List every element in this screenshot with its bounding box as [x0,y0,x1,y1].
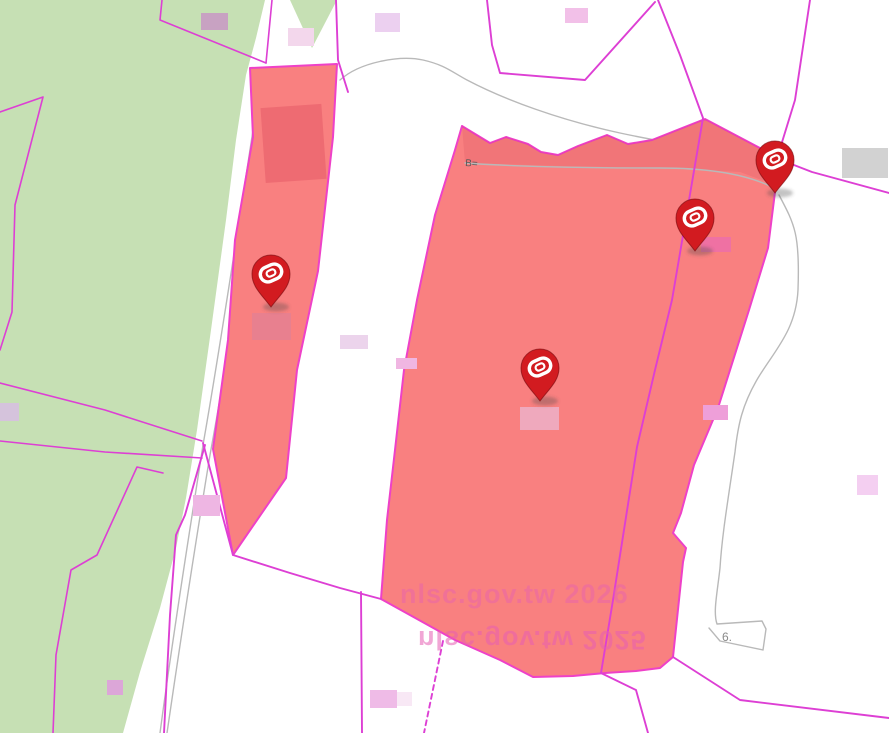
redacted-label-box-gray [842,148,888,178]
map-viewport[interactable]: B= 6. nlsc.gov.tw 2026 nlsc.gov.tw 2025 [0,0,889,733]
pin-shadow [687,247,713,256]
redacted-label-box [703,405,728,420]
pin-label-redacted [520,407,559,430]
redacted-label-box [375,13,400,32]
road-label-bottom: 6. [722,630,732,644]
redacted-label-box [0,403,19,421]
pin-shadow [767,189,793,198]
pin-label-redacted [252,313,291,340]
redacted-label-box [340,335,368,349]
redacted-label-box [397,692,412,706]
redacted-label-box [193,495,220,516]
boundary-south-branch [361,592,362,733]
pin-shadow [532,397,558,406]
redacted-label-box [288,28,314,46]
map-canvas[interactable]: B= 6. nlsc.gov.tw 2026 nlsc.gov.tw 2025 [0,0,889,733]
watermark-text-mirrored: nlsc.gov.tw 2025 [418,625,647,655]
watermark-text: nlsc.gov.tw 2026 [400,579,629,609]
redacted-label-box [857,475,878,495]
redacted-label-box [565,8,588,23]
road-label-top: B= [465,158,478,170]
redacted-label-box [370,690,397,708]
redacted-label-box [107,680,123,695]
redacted-label-box [201,13,228,30]
redacted-label-box [396,358,417,369]
strip-darker-subparcel [260,104,326,183]
pin-shadow [263,303,289,312]
